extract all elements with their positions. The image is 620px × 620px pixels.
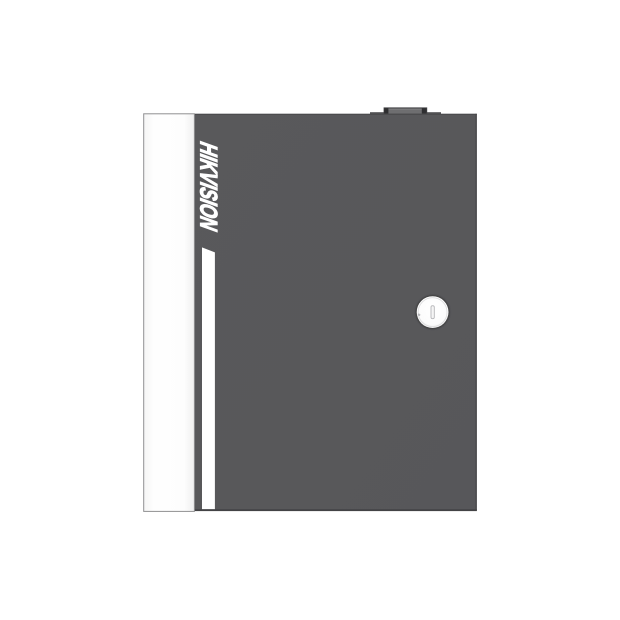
svg-text:HIKVISION: HIKVISION (195, 140, 222, 234)
